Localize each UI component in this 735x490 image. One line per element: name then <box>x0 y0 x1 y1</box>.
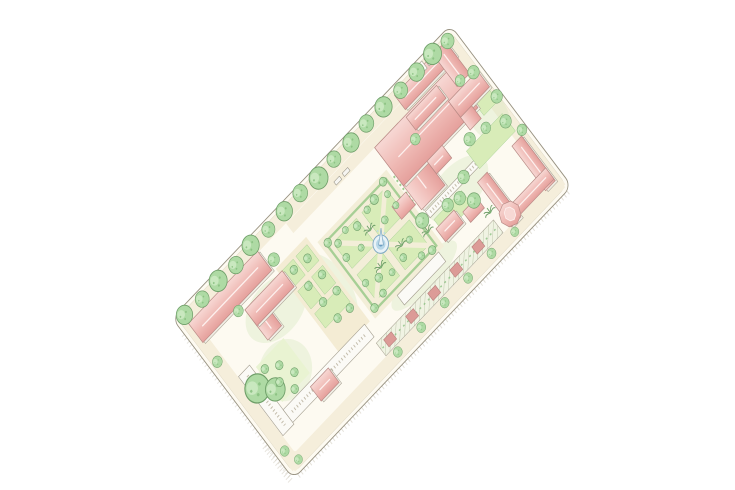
illustration-canvas <box>0 0 735 490</box>
site-plan-illustration <box>0 0 735 490</box>
jet-droplet <box>384 232 386 234</box>
jet-droplet <box>377 230 379 232</box>
site-block <box>168 23 573 483</box>
